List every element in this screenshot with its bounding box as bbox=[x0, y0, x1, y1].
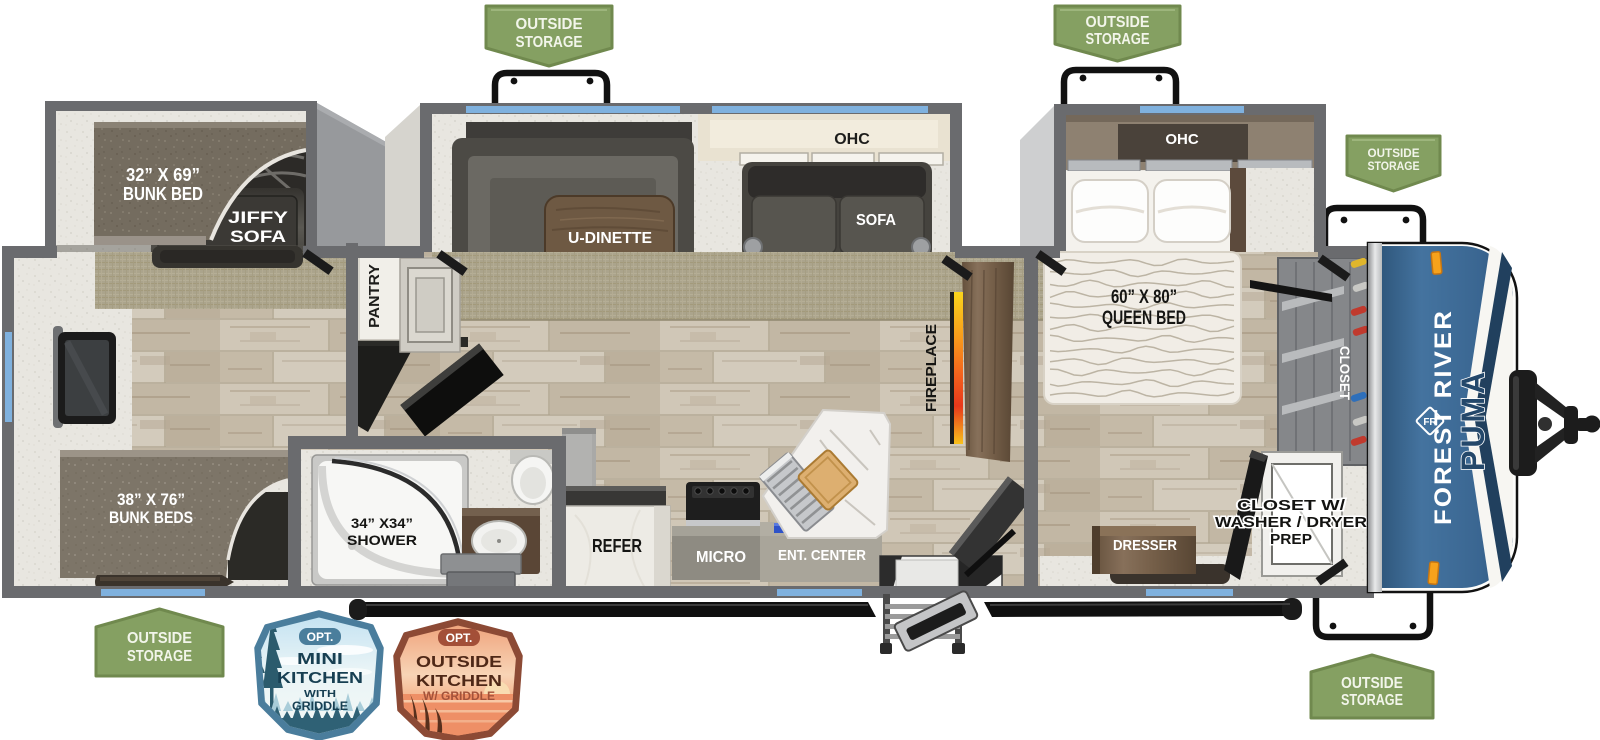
svg-text:U-DINETTE: U-DINETTE bbox=[568, 230, 652, 247]
svg-text:PANTRY: PANTRY bbox=[366, 264, 383, 328]
svg-text:STORAGE: STORAGE bbox=[1086, 31, 1150, 48]
svg-text:JIFFY: JIFFY bbox=[228, 208, 289, 227]
svg-text:REFER: REFER bbox=[592, 536, 642, 556]
svg-text:BUNK BEDS: BUNK BEDS bbox=[109, 508, 193, 527]
svg-text:W/ GRIDDLE: W/ GRIDDLE bbox=[423, 689, 495, 703]
svg-text:MICRO: MICRO bbox=[696, 549, 746, 566]
svg-text:CLOSET: CLOSET bbox=[1337, 346, 1353, 400]
svg-text:BUNK BED: BUNK BED bbox=[123, 184, 203, 204]
svg-text:SOFA: SOFA bbox=[856, 212, 896, 229]
svg-text:FIREPLACE: FIREPLACE bbox=[923, 324, 940, 412]
svg-text:FR: FR bbox=[1423, 417, 1437, 428]
svg-text:OPT.: OPT. bbox=[307, 630, 334, 644]
svg-text:OUTSIDE: OUTSIDE bbox=[1341, 675, 1403, 692]
svg-text:STORAGE: STORAGE bbox=[1368, 159, 1420, 173]
svg-text:STORAGE: STORAGE bbox=[127, 648, 192, 665]
svg-text:OUTSIDE: OUTSIDE bbox=[1086, 14, 1150, 31]
svg-text:ENT. CENTER: ENT. CENTER bbox=[778, 547, 866, 564]
svg-text:QUEEN BED: QUEEN BED bbox=[1102, 308, 1186, 329]
svg-text:OUTSIDE: OUTSIDE bbox=[516, 16, 583, 33]
svg-text:OUTSIDE: OUTSIDE bbox=[416, 654, 502, 671]
svg-text:OHC: OHC bbox=[1165, 131, 1199, 148]
svg-text:34” X34”: 34” X34” bbox=[351, 515, 413, 531]
svg-text:KITCHEN: KITCHEN bbox=[416, 673, 502, 690]
svg-text:KITCHEN: KITCHEN bbox=[277, 670, 363, 687]
svg-text:OHC: OHC bbox=[834, 131, 870, 148]
svg-text:STORAGE: STORAGE bbox=[516, 34, 583, 51]
svg-text:SHOWER: SHOWER bbox=[347, 532, 417, 548]
svg-text:38” X 76”: 38” X 76” bbox=[117, 490, 185, 509]
svg-text:STORAGE: STORAGE bbox=[1341, 692, 1403, 709]
svg-text:OUTSIDE: OUTSIDE bbox=[127, 630, 192, 647]
svg-text:DRESSER: DRESSER bbox=[1113, 537, 1177, 554]
svg-text:WASHER / DRYER: WASHER / DRYER bbox=[1215, 514, 1367, 531]
svg-text:OUTSIDE: OUTSIDE bbox=[1368, 146, 1420, 160]
svg-text:OPT.: OPT. bbox=[446, 631, 473, 645]
svg-text:PREP: PREP bbox=[1270, 531, 1312, 548]
svg-text:MINI: MINI bbox=[297, 651, 343, 668]
svg-text:60” X 80”: 60” X 80” bbox=[1111, 287, 1177, 308]
svg-text:PUMA: PUMA bbox=[1455, 369, 1491, 471]
svg-text:CLOSET W/: CLOSET W/ bbox=[1237, 497, 1346, 514]
svg-text:SOFA: SOFA bbox=[230, 227, 286, 246]
svg-text:GRIDDLE: GRIDDLE bbox=[292, 699, 348, 713]
svg-text:32” X 69”: 32” X 69” bbox=[126, 165, 200, 185]
